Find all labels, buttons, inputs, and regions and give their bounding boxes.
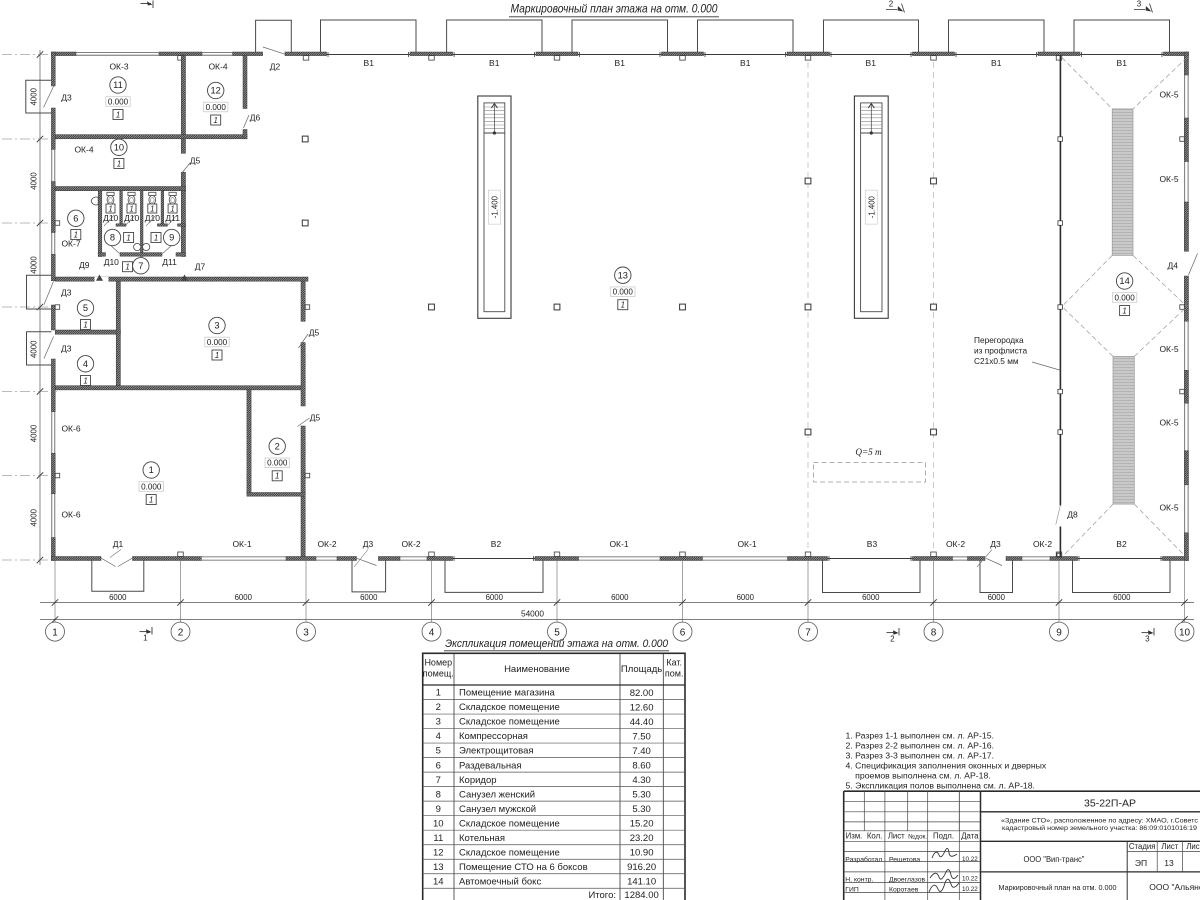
svg-text:Д11: Д11 xyxy=(165,213,180,223)
svg-text:Складское помещение: Складское помещение xyxy=(459,702,560,713)
svg-text:6000: 6000 xyxy=(360,593,378,602)
svg-text:5. Экспликация полов выполнена: 5. Экспликация полов выполнена см. л. АР… xyxy=(846,780,1035,790)
svg-text:8: 8 xyxy=(931,627,937,638)
svg-text:кадастровый номер земельного у: кадастровый номер земельного участка: 86… xyxy=(1002,824,1197,832)
svg-text:Лист: Лист xyxy=(888,832,905,841)
svg-text:5: 5 xyxy=(83,303,88,313)
svg-text:9: 9 xyxy=(1056,627,1062,638)
svg-text:0.000: 0.000 xyxy=(206,103,227,112)
svg-text:10: 10 xyxy=(433,818,444,829)
svg-text:7: 7 xyxy=(805,627,811,638)
svg-text:В1: В1 xyxy=(740,58,751,68)
svg-text:4000: 4000 xyxy=(29,256,38,274)
svg-text:Складское помещение: Складское помещение xyxy=(459,717,560,728)
svg-text:Маркировочный план на отм. 0.0: Маркировочный план на отм. 0.000 xyxy=(999,883,1117,892)
svg-text:12: 12 xyxy=(211,86,221,96)
svg-text:ОК-6: ОК-6 xyxy=(61,424,80,434)
svg-text:Коротаев: Коротаев xyxy=(889,887,919,894)
svg-text:23.20: 23.20 xyxy=(630,833,654,844)
svg-text:Подл.: Подл. xyxy=(933,832,954,841)
svg-text:13: 13 xyxy=(433,862,444,873)
svg-text:14: 14 xyxy=(1119,276,1129,286)
svg-text:ОК-5: ОК-5 xyxy=(1159,174,1178,184)
svg-text:3: 3 xyxy=(436,717,441,728)
svg-text:Дата: Дата xyxy=(961,832,979,841)
svg-text:Маркировочный план этажа на от: Маркировочный план этажа на отм. 0.000 xyxy=(511,2,718,16)
svg-text:4000: 4000 xyxy=(29,424,38,442)
svg-text:Санузел мужской: Санузел мужской xyxy=(459,804,536,815)
svg-text:В1: В1 xyxy=(1117,58,1128,68)
svg-text:ОК-5: ОК-5 xyxy=(1159,90,1178,100)
svg-text:1: 1 xyxy=(621,301,625,310)
svg-text:3: 3 xyxy=(303,627,309,638)
svg-text:Q=5 m: Q=5 m xyxy=(855,447,882,457)
svg-text:Н. контр.: Н. контр. xyxy=(845,876,873,883)
svg-text:54000: 54000 xyxy=(521,609,544,619)
svg-text:1: 1 xyxy=(117,159,121,168)
svg-text:10.22: 10.22 xyxy=(962,876,978,883)
svg-text:-1.400: -1.400 xyxy=(490,195,499,218)
svg-text:0.000: 0.000 xyxy=(267,459,288,468)
svg-text:В1: В1 xyxy=(489,58,500,68)
svg-text:Лис: Лис xyxy=(1186,842,1199,851)
svg-text:Санузел женский: Санузел женский xyxy=(459,789,535,800)
svg-text:35-22П-АР: 35-22П-АР xyxy=(1084,798,1136,810)
svg-text:1: 1 xyxy=(154,233,158,242)
svg-text:4. Спецификация заполнения око: 4. Спецификация заполнения оконных и две… xyxy=(846,760,1047,770)
svg-text:4000: 4000 xyxy=(29,172,38,190)
svg-text:Решетова: Решетова xyxy=(889,857,920,864)
svg-text:В1: В1 xyxy=(364,58,375,68)
svg-text:8.60: 8.60 xyxy=(632,760,651,771)
svg-text:10.22: 10.22 xyxy=(962,886,978,893)
svg-text:1: 1 xyxy=(149,495,153,504)
svg-text:14: 14 xyxy=(433,876,444,887)
svg-text:Кол.: Кол. xyxy=(867,832,882,841)
svg-text:Изм.: Изм. xyxy=(846,832,863,841)
svg-text:Д3: Д3 xyxy=(363,539,374,549)
svg-text:Д2: Д2 xyxy=(270,62,281,72)
svg-text:4000: 4000 xyxy=(29,508,38,526)
svg-text:ГИП: ГИП xyxy=(845,887,859,894)
svg-text:ОК-6: ОК-6 xyxy=(61,510,80,520)
svg-text:Д3: Д3 xyxy=(61,344,72,354)
svg-text:82.00: 82.00 xyxy=(630,688,654,699)
svg-text:ОК-2: ОК-2 xyxy=(317,539,336,549)
svg-text:1: 1 xyxy=(275,472,279,481)
svg-text:1: 1 xyxy=(1122,306,1126,315)
svg-text:В1: В1 xyxy=(615,58,626,68)
svg-text:6: 6 xyxy=(73,214,78,224)
svg-text:7.50: 7.50 xyxy=(632,731,651,742)
svg-text:ОК-4: ОК-4 xyxy=(208,62,227,72)
svg-text:0.000: 0.000 xyxy=(108,97,129,106)
svg-text:ОК-2: ОК-2 xyxy=(946,539,965,549)
svg-text:ОК-1: ОК-1 xyxy=(609,539,628,549)
svg-text:Д5: Д5 xyxy=(309,328,320,338)
svg-text:12.60: 12.60 xyxy=(630,702,654,713)
svg-text:Перегородка: Перегородка xyxy=(974,335,1024,345)
svg-text:ОК-1: ОК-1 xyxy=(232,539,251,549)
svg-text:6000: 6000 xyxy=(611,593,629,602)
svg-text:1. Разрез 1-1 выполнен см. л.: 1. Разрез 1-1 выполнен см. л. АР-15. xyxy=(846,730,994,740)
svg-text:10.22: 10.22 xyxy=(962,856,978,863)
svg-text:1: 1 xyxy=(125,263,129,272)
svg-text:Д9: Д9 xyxy=(79,260,90,270)
svg-text:44.40: 44.40 xyxy=(630,717,654,728)
svg-text:В1: В1 xyxy=(991,58,1002,68)
svg-text:12: 12 xyxy=(433,847,444,858)
svg-text:10: 10 xyxy=(1179,627,1191,638)
svg-text:2: 2 xyxy=(436,702,441,713)
svg-text:Автомоечный бокс: Автомоечный бокс xyxy=(459,876,541,887)
svg-text:ОК-7: ОК-7 xyxy=(61,239,80,249)
svg-text:15.20: 15.20 xyxy=(630,819,654,830)
svg-text:Д3: Д3 xyxy=(61,93,72,103)
svg-text:Раздевальная: Раздевальная xyxy=(459,760,522,771)
svg-text:Кат.: Кат. xyxy=(666,658,682,668)
svg-text:1: 1 xyxy=(83,376,87,385)
svg-text:0.000: 0.000 xyxy=(613,288,634,297)
svg-text:7: 7 xyxy=(436,775,441,786)
svg-text:Итого:: Итого: xyxy=(588,890,616,900)
svg-text:Номер: Номер xyxy=(424,658,452,668)
svg-text:5.30: 5.30 xyxy=(632,790,651,801)
svg-text:ОК-5: ОК-5 xyxy=(1159,418,1178,428)
svg-text:В3: В3 xyxy=(867,539,878,549)
svg-text:из профлиста: из профлиста xyxy=(974,346,1027,356)
svg-text:1: 1 xyxy=(52,627,58,638)
svg-text:1: 1 xyxy=(143,634,148,643)
svg-text:1284.00: 1284.00 xyxy=(624,890,658,900)
svg-text:Д3: Д3 xyxy=(61,288,72,298)
svg-text:В1: В1 xyxy=(866,58,877,68)
svg-text:10: 10 xyxy=(114,143,124,153)
svg-text:5: 5 xyxy=(554,627,560,638)
svg-text:1: 1 xyxy=(436,688,441,699)
svg-text:Площадь: Площадь xyxy=(621,664,662,675)
svg-text:3: 3 xyxy=(1145,635,1150,644)
svg-text:ОК-2: ОК-2 xyxy=(1033,539,1052,549)
svg-text:4: 4 xyxy=(436,731,441,742)
svg-text:Д10: Д10 xyxy=(145,213,160,223)
svg-text:5: 5 xyxy=(436,746,441,757)
svg-text:Д4: Д4 xyxy=(1167,261,1178,271)
svg-text:3. Разрез 3-3 выполнен см. л.: 3. Разрез 3-3 выполнен см. л. АР-17. xyxy=(846,750,994,760)
svg-text:4: 4 xyxy=(83,359,88,369)
svg-text:проемов выполнена см. л. АР-18: проемов выполнена см. л. АР-18. xyxy=(846,770,991,780)
svg-text:11: 11 xyxy=(113,80,123,90)
svg-text:141.10: 141.10 xyxy=(627,877,656,888)
svg-text:6000: 6000 xyxy=(988,593,1006,602)
svg-text:ОК-4: ОК-4 xyxy=(74,145,93,155)
svg-text:Д7: Д7 xyxy=(195,262,206,272)
svg-text:7.40: 7.40 xyxy=(632,746,651,757)
svg-text:ОК-5: ОК-5 xyxy=(1159,503,1178,513)
svg-text:4000: 4000 xyxy=(29,87,38,105)
svg-text:Д6: Д6 xyxy=(250,113,261,123)
svg-text:6000: 6000 xyxy=(1113,593,1131,602)
svg-text:13: 13 xyxy=(618,270,628,280)
svg-text:8: 8 xyxy=(436,789,441,800)
svg-text:Д3: Д3 xyxy=(990,539,1001,549)
svg-text:Лист: Лист xyxy=(1161,842,1178,851)
svg-text:9: 9 xyxy=(436,804,441,815)
svg-text:В2: В2 xyxy=(1116,539,1127,549)
svg-text:Д5: Д5 xyxy=(190,156,201,166)
svg-text:«Здание СТО», расположенное по: «Здание СТО», расположенное по адресу: Х… xyxy=(1001,817,1199,824)
svg-text:ОК-5: ОК-5 xyxy=(1159,344,1178,354)
svg-text:6000: 6000 xyxy=(235,593,253,602)
svg-text:0.000: 0.000 xyxy=(207,338,228,347)
svg-text:1: 1 xyxy=(126,233,130,242)
svg-text:В2: В2 xyxy=(491,539,502,549)
svg-text:1: 1 xyxy=(83,320,87,329)
svg-text:Компрессорная: Компрессорная xyxy=(459,731,528,742)
svg-text:Д1: Д1 xyxy=(113,539,124,549)
svg-text:ООО "Альянс: ООО "Альянс xyxy=(1149,882,1200,892)
svg-text:9: 9 xyxy=(169,233,174,243)
svg-text:ООО "Вип-транс": ООО "Вип-транс" xyxy=(1024,855,1085,864)
svg-text:4: 4 xyxy=(429,627,435,638)
svg-text:7: 7 xyxy=(138,261,143,271)
svg-text:6000: 6000 xyxy=(737,593,755,602)
svg-text:1: 1 xyxy=(215,351,219,360)
svg-text:Складское помещение: Складское помещение xyxy=(459,818,560,829)
svg-text:Коридор: Коридор xyxy=(459,775,497,786)
svg-text:2: 2 xyxy=(889,0,894,9)
svg-text:2. Разрез 2-2 выполнен см. л.: 2. Разрез 2-2 выполнен см. л. АР-16. xyxy=(846,740,994,750)
svg-text:1: 1 xyxy=(116,110,120,119)
svg-text:ОК-2: ОК-2 xyxy=(401,539,420,549)
svg-text:помещ.: помещ. xyxy=(423,669,454,679)
svg-text:11: 11 xyxy=(433,833,443,844)
svg-text:Д8: Д8 xyxy=(1067,510,1078,520)
svg-text:Д5: Д5 xyxy=(310,413,321,423)
svg-text:6000: 6000 xyxy=(109,593,127,602)
svg-text:Д10: Д10 xyxy=(103,213,118,223)
svg-text:10.90: 10.90 xyxy=(630,848,654,859)
svg-text:3: 3 xyxy=(1137,0,1142,9)
svg-text:6: 6 xyxy=(436,760,441,771)
svg-text:пом.: пом. xyxy=(665,669,684,679)
svg-text:ОК-3: ОК-3 xyxy=(109,62,128,72)
svg-text:2: 2 xyxy=(890,635,895,644)
svg-text:2: 2 xyxy=(275,442,280,452)
svg-text:4.30: 4.30 xyxy=(632,775,651,786)
svg-text:6000: 6000 xyxy=(862,593,880,602)
svg-text:Котельная: Котельная xyxy=(459,833,505,844)
svg-text:2: 2 xyxy=(178,627,184,638)
svg-text:-1.400: -1.400 xyxy=(867,195,876,218)
svg-text:4000: 4000 xyxy=(29,340,38,358)
svg-text:0.000: 0.000 xyxy=(1114,293,1135,302)
svg-text:Двоеглазов: Двоеглазов xyxy=(889,876,926,883)
svg-text:916.20: 916.20 xyxy=(627,862,656,873)
svg-text:С21х0.5 мм: С21х0.5 мм xyxy=(974,356,1019,366)
svg-text:8: 8 xyxy=(110,233,115,243)
svg-text:Помещение магазина: Помещение магазина xyxy=(459,688,556,699)
svg-text:ОК-1: ОК-1 xyxy=(737,539,756,549)
svg-text:6: 6 xyxy=(680,627,686,638)
svg-text:Помещение СТО на 6 боксов: Помещение СТО на 6 боксов xyxy=(459,862,588,873)
svg-text:3: 3 xyxy=(214,321,219,331)
svg-text:Наименование: Наименование xyxy=(504,664,570,675)
svg-text:5.30: 5.30 xyxy=(632,804,651,815)
svg-text:Складское помещение: Складское помещение xyxy=(459,847,560,858)
svg-text:№док.: №док. xyxy=(908,833,927,840)
svg-text:Стадия: Стадия xyxy=(1129,842,1156,851)
svg-text:6000: 6000 xyxy=(486,593,504,602)
svg-text:ЭП: ЭП xyxy=(1135,858,1147,868)
svg-text:1: 1 xyxy=(149,465,154,475)
svg-text:Д10: Д10 xyxy=(124,213,139,223)
svg-text:0.000: 0.000 xyxy=(141,482,162,491)
svg-text:Д11: Д11 xyxy=(162,257,177,267)
svg-text:Экспликация помещений этажа на: Экспликация помещений этажа на отм. 0.00… xyxy=(445,638,669,650)
svg-text:Д10: Д10 xyxy=(104,257,119,267)
svg-text:Электрощитовая: Электрощитовая xyxy=(459,746,534,757)
svg-text:Разработал: Разработал xyxy=(845,856,882,864)
svg-text:1: 1 xyxy=(214,116,218,125)
svg-text:13: 13 xyxy=(1164,858,1174,868)
